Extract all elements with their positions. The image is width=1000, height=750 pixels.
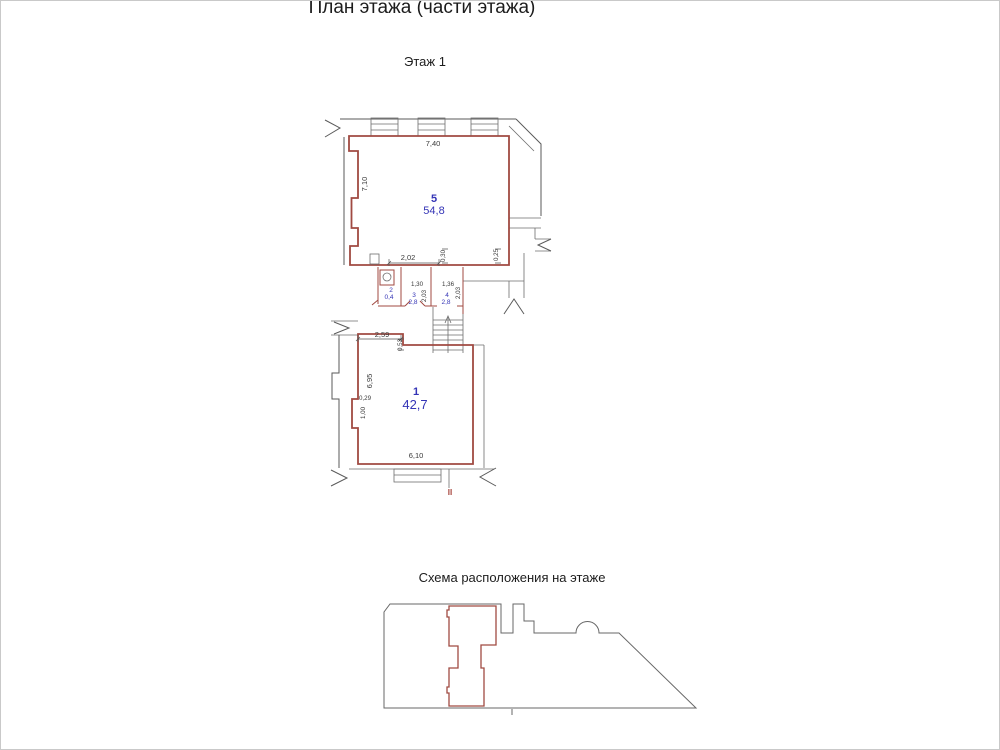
dim-room1-top-step: 0,53 (397, 338, 404, 351)
scheme-building-outline (384, 604, 696, 715)
dim-room1-niche-width: 0,29 (359, 395, 372, 402)
wall-break-corridor-icon (504, 299, 524, 314)
fixture-square-icon (370, 254, 379, 264)
section-mark: II (448, 488, 452, 497)
wc-fixture-icon (380, 270, 394, 285)
dim-room1-bottom: 6,10 (409, 451, 424, 460)
floor-plan-page: План этажа (части этажа) Этаж 1 (0, 0, 1000, 750)
room5-number: 5 (431, 193, 437, 205)
room2-number: 2 (389, 287, 393, 294)
scheme-unit-highlight (447, 606, 496, 706)
dim-room1-left: 6,95 (365, 374, 374, 389)
dim-room5-left: 7,10 (360, 177, 369, 192)
scheme-caption: Схема расположения на этаже (419, 570, 606, 585)
dim-room5-top: 7,40 (426, 139, 441, 148)
dim-room3-width: 1,30 (411, 281, 424, 288)
dim-room5-bottom-right: 0,25 (493, 248, 500, 261)
floor-plan-drawing: План этажа (части этажа) Этаж 1 (1, 1, 1000, 750)
room4-area: 2,8 (441, 299, 450, 306)
dim-room4-width: 1,36 (442, 281, 455, 288)
dim-room1-top-left: 2,59 (375, 330, 390, 339)
dim-room4-depth: 2,03 (455, 286, 462, 299)
room3-number: 3 (412, 292, 416, 299)
window-top-3-icon (471, 118, 498, 136)
room3-area: 2,8 (408, 299, 417, 306)
wall-break-bottom-right-icon (480, 468, 496, 486)
page-title: План этажа (части этажа) (309, 1, 536, 18)
room4-number: 4 (445, 292, 449, 299)
dim-room5-bottom-left: 2,02 (401, 253, 416, 262)
window-right-icon (509, 218, 541, 228)
unit-outline-room5 (349, 136, 509, 265)
window-bottom-icon (394, 469, 441, 482)
room1-area: 42,7 (402, 397, 427, 412)
wall-break-right-icon (538, 239, 551, 251)
staircase (433, 307, 463, 353)
dim-room1-niche-height: 1,00 (360, 406, 367, 419)
dim-room3-depth: 2,03 (421, 289, 428, 302)
dim-room5-bottom-mid: 0,30 (440, 249, 447, 262)
wc-bowl-icon (383, 273, 391, 281)
window-top-2-icon (418, 118, 445, 136)
wall-break-left-icon (334, 322, 349, 334)
unit-outline-small-rooms (372, 267, 463, 314)
window-top-1-icon (371, 118, 398, 136)
room2-area: 0,4 (384, 294, 393, 301)
room5-area: 54,8 (423, 205, 444, 217)
wall-break-top-left-icon (325, 120, 340, 137)
floor-label: Этаж 1 (404, 54, 446, 69)
wall-break-bottom-left-icon (331, 470, 347, 486)
